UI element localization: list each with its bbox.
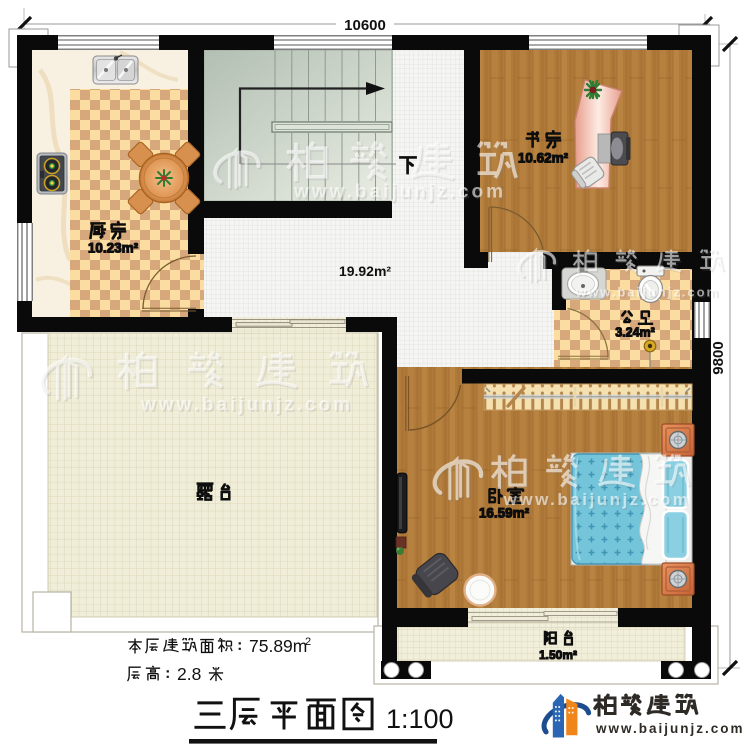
svg-text:2.8: 2.8 xyxy=(177,664,201,684)
svg-text:1.50m²: 1.50m² xyxy=(539,648,577,662)
svg-text:75.89m: 75.89m xyxy=(249,636,307,656)
svg-text:3.24m²: 3.24m² xyxy=(615,326,655,340)
svg-text:www.baijunjz.com: www.baijunjz.com xyxy=(595,721,745,736)
svg-text:www.baijunjz.com: www.baijunjz.com xyxy=(503,490,691,509)
svg-text:2: 2 xyxy=(305,636,311,648)
svg-text:www.baijunjz.com: www.baijunjz.com xyxy=(575,285,720,300)
svg-text:www.baijunjz.com: www.baijunjz.com xyxy=(293,182,506,203)
svg-text:10.62m²: 10.62m² xyxy=(518,151,569,166)
svg-text:10600: 10600 xyxy=(344,17,386,34)
svg-text:9800: 9800 xyxy=(710,341,727,374)
svg-text:1:100: 1:100 xyxy=(386,704,454,734)
svg-text:10.23m²: 10.23m² xyxy=(88,241,139,256)
svg-text:19.92m²: 19.92m² xyxy=(339,263,391,279)
svg-text:www.baijunjz.com: www.baijunjz.com xyxy=(140,395,353,416)
